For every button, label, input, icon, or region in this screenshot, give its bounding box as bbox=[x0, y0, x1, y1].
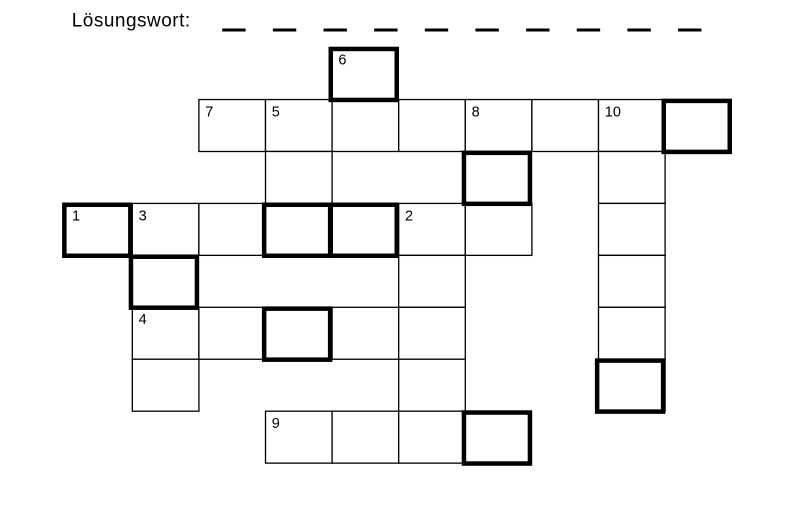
svg-text:8: 8 bbox=[472, 104, 480, 120]
svg-text:7: 7 bbox=[205, 104, 213, 120]
svg-text:10: 10 bbox=[605, 104, 621, 120]
svg-text:4: 4 bbox=[139, 312, 147, 328]
svg-text:5: 5 bbox=[272, 104, 280, 120]
svg-text:9: 9 bbox=[272, 416, 280, 432]
svg-text:Lösungswort:: Lösungswort: bbox=[72, 10, 191, 31]
svg-text:3: 3 bbox=[139, 208, 147, 224]
svg-text:2: 2 bbox=[405, 208, 413, 224]
svg-text:6: 6 bbox=[338, 53, 346, 69]
svg-text:1: 1 bbox=[72, 208, 80, 224]
